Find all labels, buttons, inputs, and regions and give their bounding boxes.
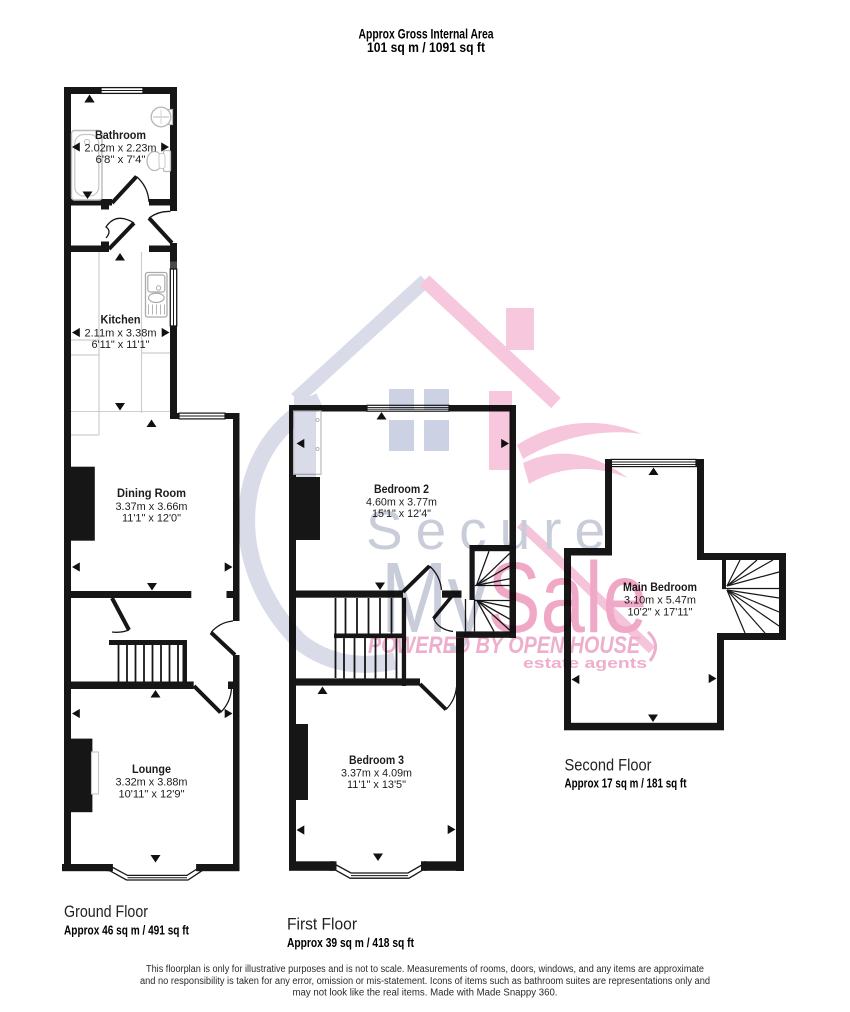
svg-text:Bathroom: Bathroom — [95, 129, 146, 142]
svg-text:11'1" x 12'0": 11'1" x 12'0" — [122, 513, 181, 525]
svg-text:Dining Room: Dining Room — [117, 487, 186, 500]
svg-text:Second Floor: Second Floor — [565, 757, 652, 775]
svg-text:Bedroom 2: Bedroom 2 — [374, 483, 429, 496]
svg-text:3.37m x 4.09m: 3.37m x 4.09m — [341, 768, 412, 780]
svg-text:Ground Floor: Ground Floor — [64, 903, 148, 921]
svg-text:2.11m x 3.38m: 2.11m x 3.38m — [85, 328, 157, 340]
svg-text:Approx 17 sq m / 181 sq ft: Approx 17 sq m / 181 sq ft — [565, 777, 688, 791]
svg-text:2.02m x 2.23m: 2.02m x 2.23m — [85, 143, 157, 155]
svg-text:This floorplan is only for ill: This floorplan is only for illustrative … — [146, 964, 704, 975]
svg-text:Kitchen: Kitchen — [101, 314, 141, 327]
svg-text:Lounge: Lounge — [132, 763, 172, 776]
svg-text:may not look like the real ite: may not look like the real items. Made w… — [293, 988, 558, 999]
svg-text:10'11" x 12'9": 10'11" x 12'9" — [119, 789, 185, 801]
svg-text:Approx 46 sq m / 491 sq ft: Approx 46 sq m / 491 sq ft — [64, 924, 190, 938]
svg-text:Approx 39 sq m / 418 sq ft: Approx 39 sq m / 418 sq ft — [287, 936, 415, 950]
svg-text:Bedroom 3: Bedroom 3 — [349, 754, 404, 767]
svg-text:First Floor: First Floor — [287, 916, 357, 934]
svg-text:6'8" x 7'4": 6'8" x 7'4" — [96, 154, 146, 166]
svg-text:and no responsibility is taken: and no responsibility is taken for any e… — [140, 976, 710, 987]
svg-text:6'11" x 11'1": 6'11" x 11'1" — [92, 339, 150, 351]
svg-text:estate agents: estate agents — [523, 655, 647, 672]
svg-text:101 sq m / 1091 sq ft: 101 sq m / 1091 sq ft — [367, 40, 485, 55]
svg-text:11'1" x 13'5": 11'1" x 13'5" — [347, 779, 406, 791]
svg-text:3.37m x 3.66m: 3.37m x 3.66m — [116, 501, 188, 513]
svg-text:3.32m x 3.88m: 3.32m x 3.88m — [116, 777, 188, 789]
